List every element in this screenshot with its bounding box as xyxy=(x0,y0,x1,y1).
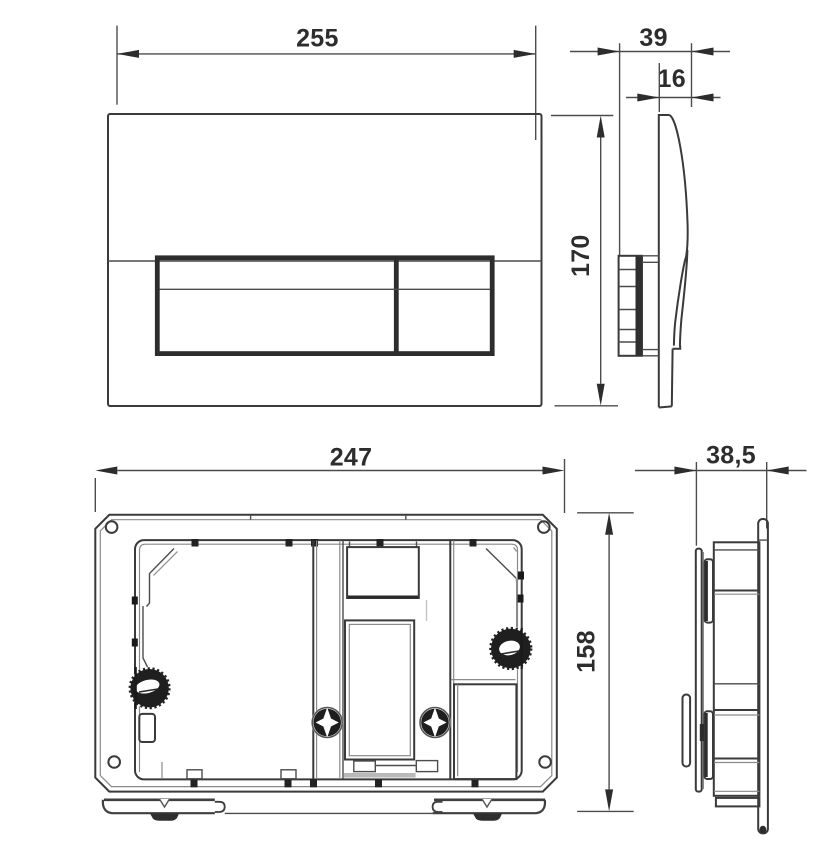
svg-text:158: 158 xyxy=(573,630,601,673)
svg-text:255: 255 xyxy=(296,25,339,53)
svg-text:16: 16 xyxy=(657,65,685,93)
svg-text:170: 170 xyxy=(567,234,595,277)
svg-text:247: 247 xyxy=(330,444,373,472)
svg-text:38,5: 38,5 xyxy=(706,442,756,470)
svg-text:39: 39 xyxy=(639,24,667,52)
